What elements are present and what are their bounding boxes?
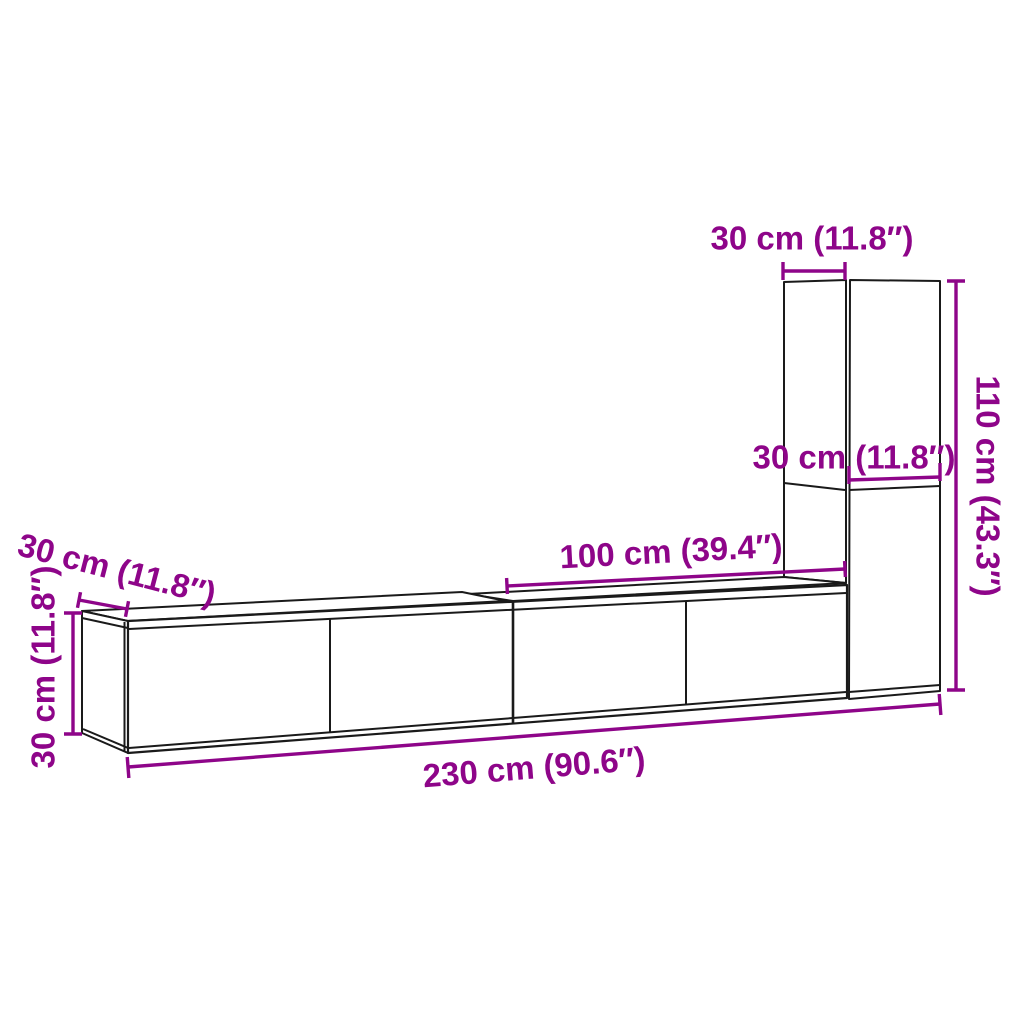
label-tall-width-middle: 30 cm (11.8″) [753, 439, 956, 476]
diagram-canvas: 30 cm (11.8″) 110 cm (43.3″) 30 cm (11.8… [0, 0, 1024, 1024]
dim-line-tall-height [947, 281, 965, 690]
dim-line-tall-width-top [783, 262, 845, 280]
label-tall-width-top: 30 cm (11.8″) [711, 220, 914, 257]
label-total-width: 230 cm (90.6″) [421, 740, 646, 795]
tall-cabinet-left-face [784, 280, 846, 583]
label-tall-height: 110 cm (43.3″) [970, 375, 1007, 596]
label-tv-unit-width: 100 cm (39.4″) [559, 527, 784, 576]
dim-line-tv-unit-height [64, 613, 82, 734]
dimension-diagram: 30 cm (11.8″) 110 cm (43.3″) 30 cm (11.8… [0, 0, 1024, 1024]
label-tv-unit-height: 30 cm (11.8″) [25, 566, 62, 769]
